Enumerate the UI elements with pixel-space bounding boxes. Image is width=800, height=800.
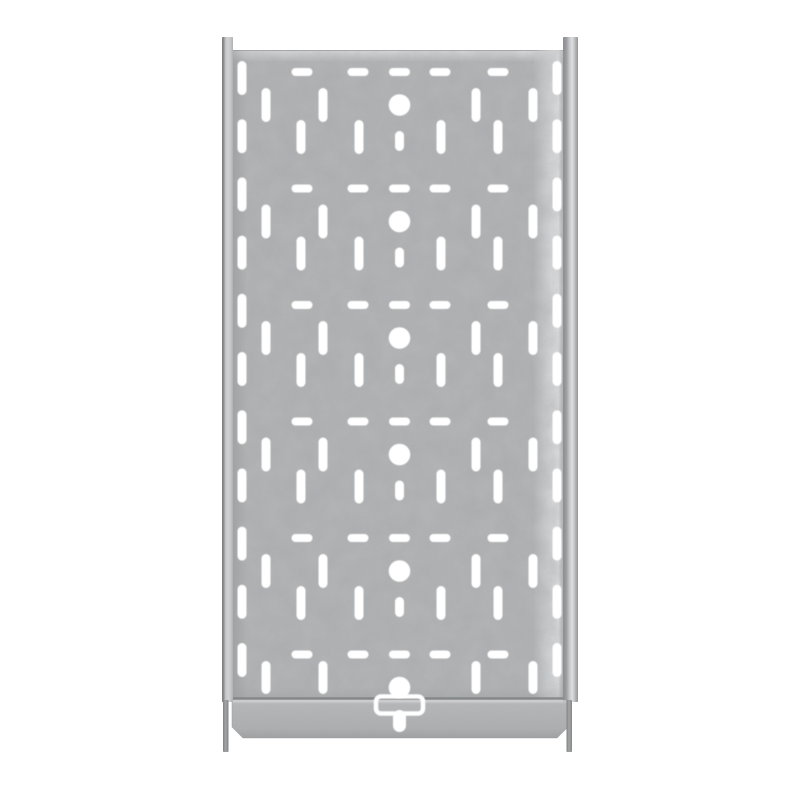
slot-hole <box>297 470 306 504</box>
slot-hole <box>472 205 481 239</box>
slot-hole <box>238 643 247 677</box>
slot-hole <box>488 418 509 426</box>
slot-hole <box>292 651 313 659</box>
slot-hole <box>297 237 306 271</box>
slot-hole <box>430 301 451 309</box>
slot-hole <box>319 661 328 694</box>
slot-hole <box>494 237 503 271</box>
slot-hole <box>488 301 509 309</box>
slot-hole <box>319 321 328 355</box>
slot-hole <box>494 353 503 387</box>
slot-hole <box>553 410 562 444</box>
slot-hole <box>430 651 451 659</box>
slot-hole <box>553 61 562 95</box>
slot-hole <box>553 294 562 328</box>
slot-hole <box>238 177 247 211</box>
slot-hole <box>238 61 247 95</box>
slot-hole <box>292 534 313 542</box>
slot-hole <box>488 651 509 659</box>
right-side-rail <box>563 37 578 702</box>
slot-hole <box>494 120 503 154</box>
slot-hole <box>430 185 451 193</box>
slot-hole <box>472 88 481 122</box>
slot-hole <box>472 661 481 694</box>
slot-hole <box>238 410 247 444</box>
bracket-stem-slot <box>393 710 406 732</box>
slot-hole <box>297 353 306 387</box>
slot-hole <box>238 468 247 502</box>
slot-hole <box>238 294 247 328</box>
slot-hole <box>553 585 562 619</box>
slot-hole <box>494 470 503 504</box>
slot-hole <box>529 205 538 239</box>
slot-hole <box>319 554 328 588</box>
slot-hole <box>430 68 451 76</box>
round-hole <box>389 211 411 233</box>
slot-hole <box>472 554 481 588</box>
slot-hole <box>437 470 446 504</box>
slot-hole <box>238 527 247 561</box>
slot-hole <box>355 353 364 387</box>
slot-hole <box>395 597 404 617</box>
slot-hole <box>553 468 562 502</box>
slot-hole <box>553 527 562 561</box>
slot-hole <box>262 554 271 588</box>
slot-hole <box>262 321 271 355</box>
slot-hole <box>437 353 446 387</box>
slot-hole <box>297 586 306 620</box>
slot-hole <box>319 438 328 472</box>
slot-hole <box>553 177 562 211</box>
slot-hole <box>292 68 313 76</box>
slot-hole <box>348 301 369 309</box>
slot-hole <box>238 119 247 153</box>
product-photo-canvas <box>0 0 800 800</box>
slot-hole <box>292 418 313 426</box>
slot-hole <box>348 651 369 659</box>
slot-hole <box>238 236 247 270</box>
slot-hole <box>355 586 364 620</box>
slot-hole <box>488 68 509 76</box>
slot-hole <box>348 185 369 193</box>
slot-hole <box>472 321 481 355</box>
slot-hole <box>262 661 271 694</box>
slot-hole <box>553 352 562 386</box>
left-side-rail <box>222 37 233 702</box>
slot-hole <box>292 185 313 193</box>
round-hole <box>389 327 411 349</box>
slot-hole <box>389 418 410 426</box>
slot-hole <box>395 248 404 268</box>
slot-hole <box>292 301 313 309</box>
slot-hole <box>488 534 509 542</box>
slot-hole <box>430 418 451 426</box>
slot-hole <box>395 131 404 151</box>
slot-hole <box>395 481 404 501</box>
slot-hole <box>553 236 562 270</box>
slot-hole <box>262 88 271 122</box>
slot-hole <box>529 321 538 355</box>
slot-hole <box>348 418 369 426</box>
slot-hole <box>553 119 562 153</box>
slot-hole <box>238 352 247 386</box>
round-hole <box>389 444 411 466</box>
slot-hole <box>494 586 503 620</box>
slot-hole <box>297 120 306 154</box>
slot-hole <box>529 88 538 122</box>
slot-hole <box>488 185 509 193</box>
slot-hole <box>389 651 410 659</box>
slot-hole <box>262 205 271 239</box>
slot-hole <box>529 554 538 588</box>
slot-hole <box>389 534 410 542</box>
slot-hole <box>348 68 369 76</box>
slot-hole <box>355 120 364 154</box>
round-hole <box>389 560 411 582</box>
slot-hole <box>553 643 562 677</box>
slot-hole <box>319 88 328 122</box>
left-bottom-tab <box>223 700 229 752</box>
slot-hole <box>437 120 446 154</box>
slot-hole <box>437 237 446 271</box>
slot-hole <box>430 534 451 542</box>
slot-hole <box>348 534 369 542</box>
right-bottom-tab <box>567 700 573 752</box>
slot-hole <box>355 237 364 271</box>
slot-hole <box>472 438 481 472</box>
slot-hole <box>437 586 446 620</box>
slot-hole <box>262 438 271 472</box>
slot-hole <box>389 68 410 76</box>
slot-hole <box>529 661 538 694</box>
slot-hole <box>238 585 247 619</box>
slot-hole <box>395 364 404 384</box>
slot-hole <box>529 438 538 472</box>
slot-hole <box>389 185 410 193</box>
round-hole <box>389 94 411 116</box>
slot-hole <box>389 301 410 309</box>
slot-hole <box>355 470 364 504</box>
slot-hole <box>319 205 328 239</box>
cable-tray-product-image <box>0 0 800 800</box>
